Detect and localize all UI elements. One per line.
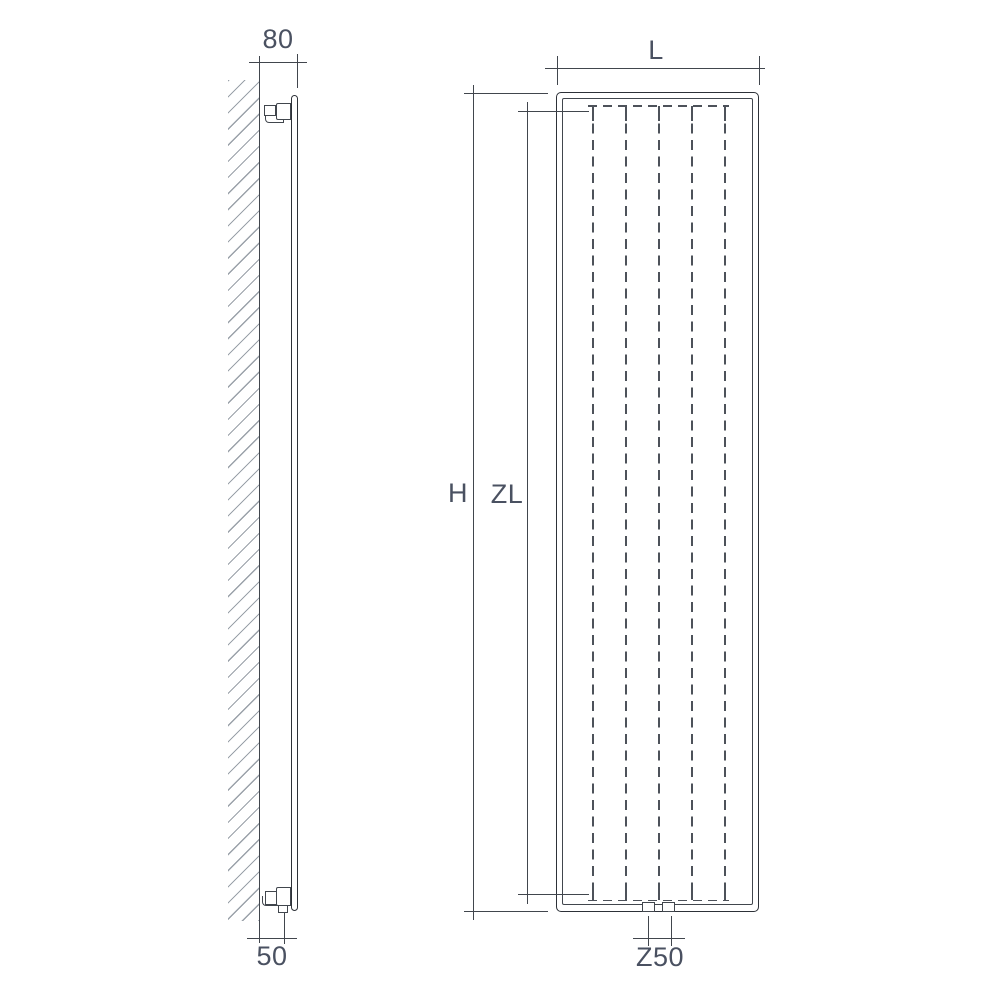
wall-face-line [259, 56, 260, 943]
fin-junction [625, 106, 627, 121]
dim-L-line [545, 68, 765, 69]
fin-junction [691, 106, 693, 121]
fin-junction [658, 106, 660, 121]
dim-ZL-ext-bottom [518, 894, 589, 895]
dim-80-line [249, 62, 307, 63]
wall-hatching [228, 80, 260, 921]
dim-ZL-line [527, 102, 528, 904]
dim-label-Z50: Z50 [624, 944, 696, 971]
dim-H-ext-top [464, 93, 548, 94]
dim-label-L: L [632, 37, 680, 64]
dim-label-50: 50 [242, 943, 302, 970]
dim-label-80: 80 [248, 26, 308, 53]
fin-junction [592, 885, 594, 900]
bottom-bracket-body [276, 887, 291, 906]
dim-L-tick-right [759, 56, 760, 85]
dim-label-ZL: ZL [482, 481, 532, 508]
dim-80-ext-right [297, 54, 298, 88]
dim-H-ext-bottom [464, 911, 548, 912]
bottom-connection-stub-side [278, 905, 288, 914]
fin-line [658, 107, 660, 899]
dim-ZL-ext-top [518, 111, 589, 112]
fin-junction [592, 106, 594, 121]
dim-50-ext-right [284, 912, 285, 944]
bottom-connection-right [662, 902, 676, 913]
dim-H-line [473, 85, 474, 920]
fin-junction [658, 885, 660, 900]
fin-line [625, 107, 627, 899]
fin-line [691, 107, 693, 899]
fin-line [724, 107, 726, 899]
fin-line [592, 107, 594, 899]
top-bracket-anchor [264, 105, 276, 116]
fin-junction [625, 885, 627, 900]
bottom-bracket-anchor [265, 891, 277, 905]
dim-Z50-ext-right [671, 916, 672, 946]
fin-junction [691, 885, 693, 900]
radiator-panel-side [291, 95, 298, 911]
top-bracket-body [276, 103, 291, 121]
dim-Z50-ext-left [648, 916, 649, 946]
fin-junction [724, 106, 726, 121]
fin-junction [724, 885, 726, 900]
bottom-connection-left [642, 902, 656, 913]
dim-Z50-line [633, 938, 685, 939]
radiator-dimension-drawing: 80 50 L [0, 0, 1000, 1000]
dim-50-line [247, 938, 297, 939]
dim-L-tick-left [557, 56, 558, 85]
